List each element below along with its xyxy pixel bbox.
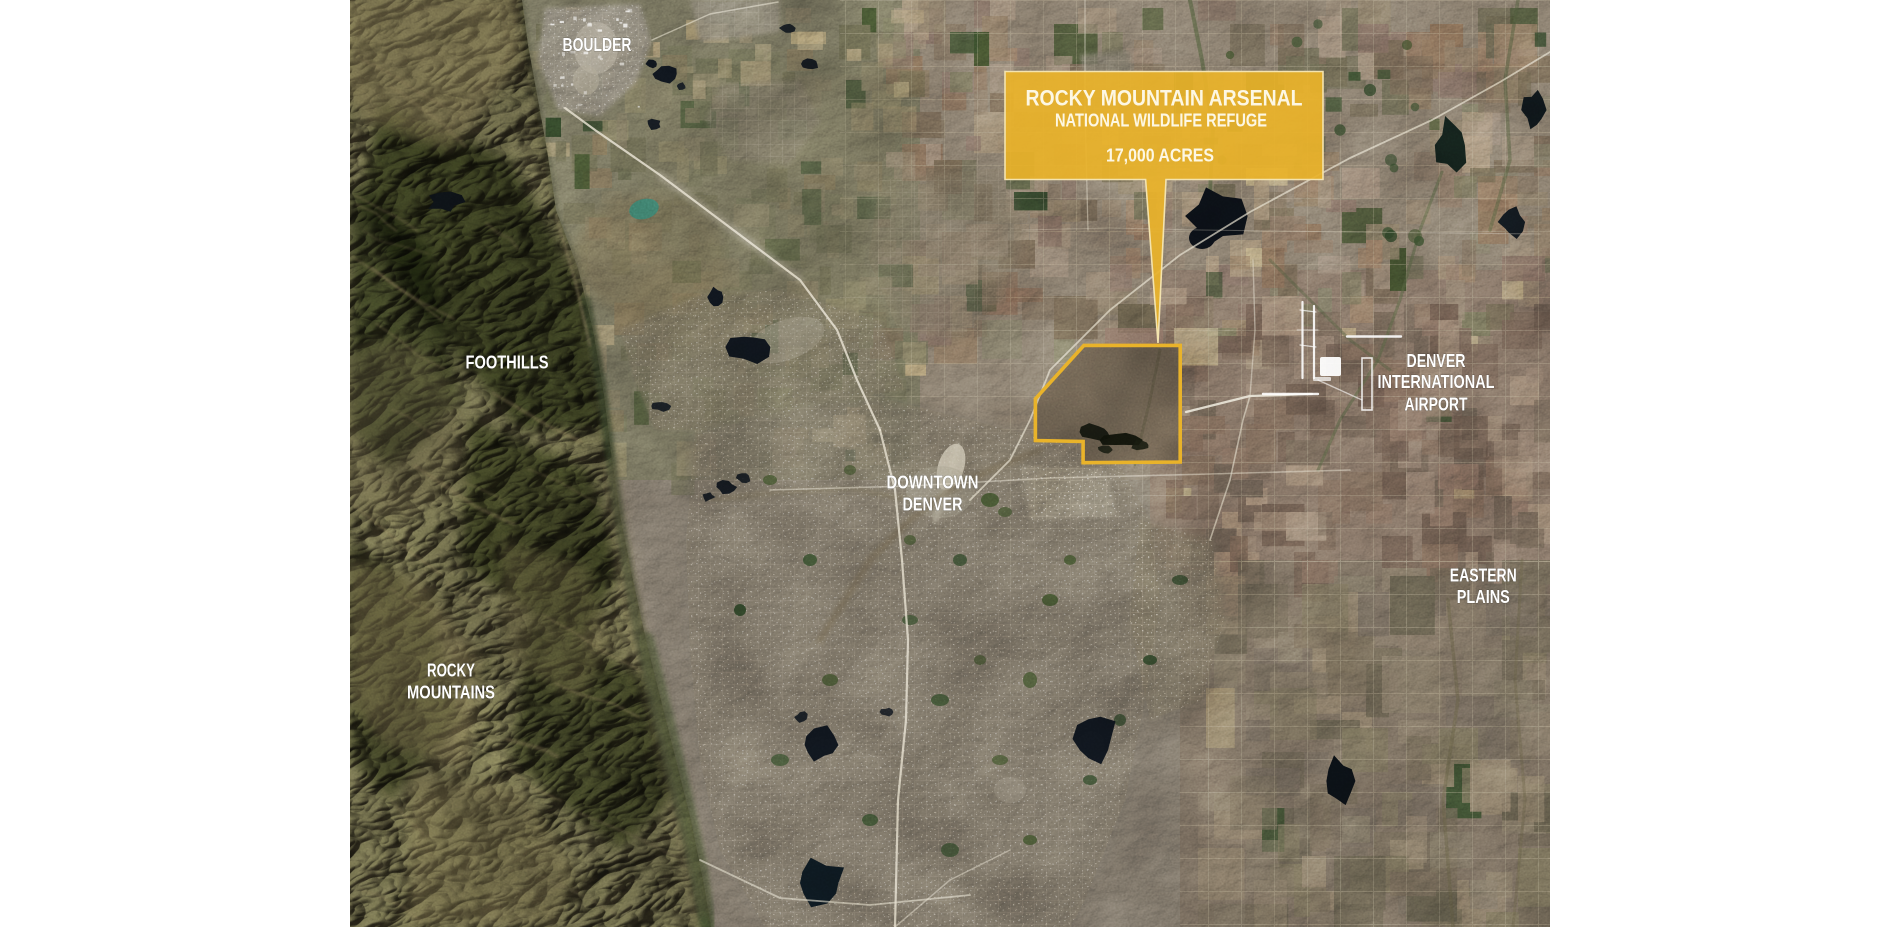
svg-text:PLAINS: PLAINS: [1457, 586, 1510, 607]
svg-text:ROCKY MOUNTAIN ARSENAL: ROCKY MOUNTAIN ARSENAL: [1026, 86, 1303, 111]
svg-text:DOWNTOWN: DOWNTOWN: [887, 472, 979, 493]
svg-text:NATIONAL WILDLIFE REFUGE: NATIONAL WILDLIFE REFUGE: [1055, 111, 1267, 131]
svg-text:DENVER: DENVER: [903, 494, 963, 515]
svg-text:AIRPORT: AIRPORT: [1405, 393, 1469, 414]
svg-text:INTERNATIONAL: INTERNATIONAL: [1378, 371, 1495, 392]
svg-text:BOULDER: BOULDER: [563, 34, 632, 55]
svg-text:EASTERN: EASTERN: [1450, 565, 1517, 586]
svg-text:MOUNTAINS: MOUNTAINS: [407, 682, 495, 703]
svg-text:FOOTHILLS: FOOTHILLS: [466, 352, 549, 373]
svg-text:ROCKY: ROCKY: [427, 660, 475, 681]
svg-text:17,000 ACRES: 17,000 ACRES: [1106, 146, 1214, 166]
svg-text:DENVER: DENVER: [1407, 350, 1466, 371]
